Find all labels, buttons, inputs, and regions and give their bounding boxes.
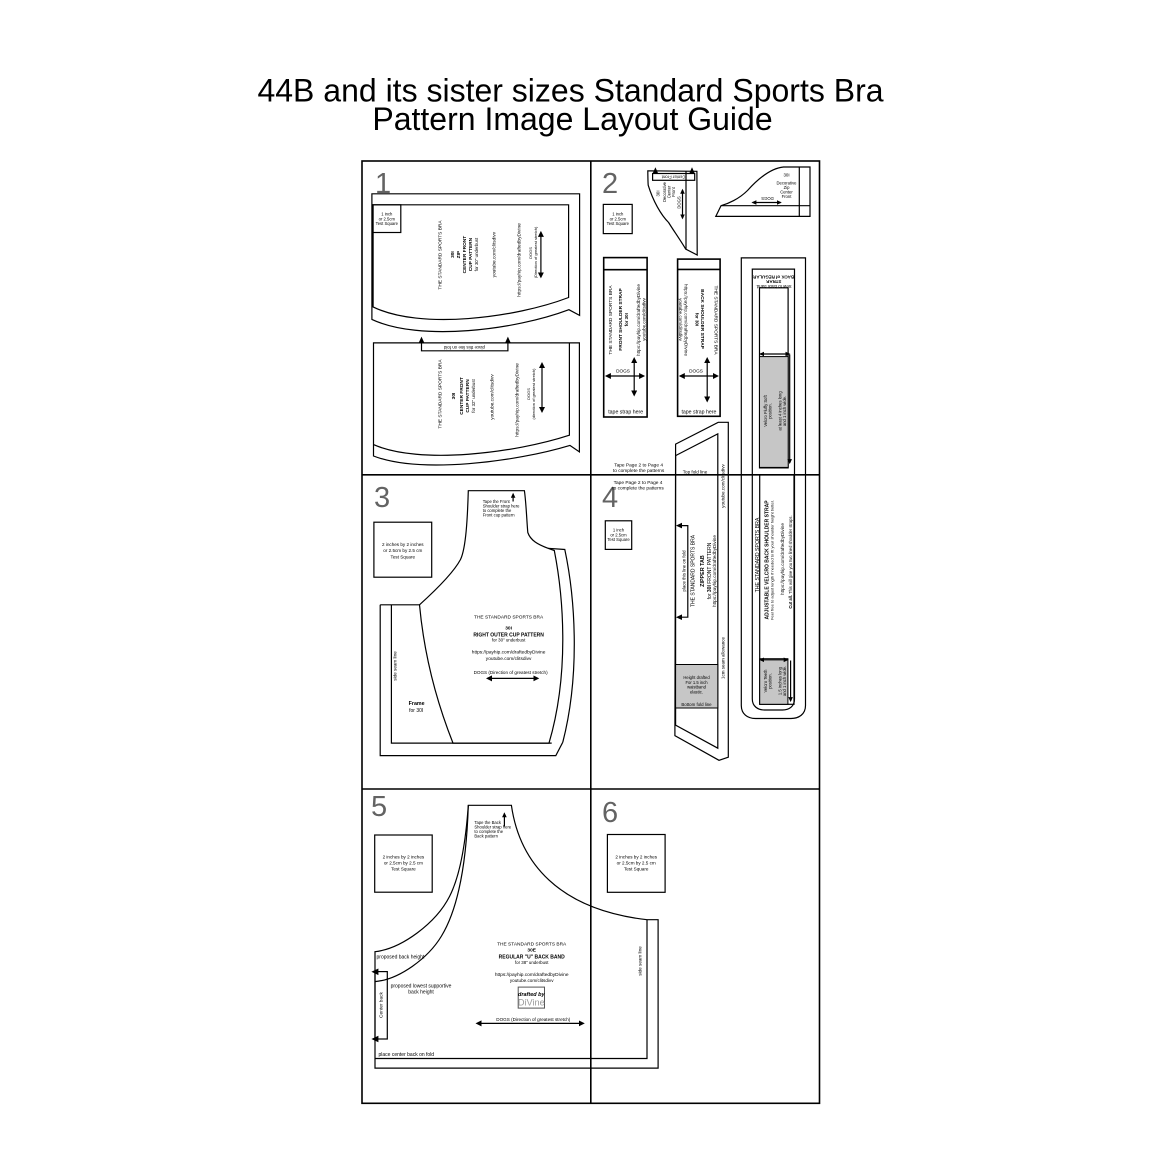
svg-text:for 30" underbust: for 30" underbust [474,237,479,271]
svg-text:3: 3 [374,482,390,514]
svg-text:30I: 30I [505,626,512,632]
svg-text:or 2.5cm by 2.5 cm: or 2.5cm by 2.5 cm [384,860,423,865]
svg-text:or 2.5cm by 2.5 cm: or 2.5cm by 2.5 cm [383,548,422,553]
svg-text:and 1 inch wide.: and 1 inch wide. [782,666,787,696]
svg-text:DOGS: DOGS [689,369,703,374]
svg-text:Frame: Frame [409,701,425,707]
svg-text:tape strap here: tape strap here [608,410,643,416]
svg-text:1cm seam allowance: 1cm seam allowance [721,637,726,680]
svg-text:to complete the patterns: to complete the patterns [613,468,665,474]
svg-text:place center back on fold: place center back on fold [379,1052,435,1058]
svg-text:THE STANDARD SPORTS BRA: THE STANDARD SPORTS BRA [713,285,719,355]
svg-text:for 30I: for 30I [624,313,629,326]
svg-text:Front cup pattern: Front cup pattern [483,513,516,518]
svg-text:Feel free to adjust length if: Feel free to adjust length if needed to … [770,500,775,620]
svg-text:2 inches by 2 inches: 2 inches by 2 inches [383,855,425,860]
svg-text:for 32" underbust: for 32" underbust [471,378,476,412]
svg-text:Center Front: Center Front [661,175,685,180]
svg-text:2 inches by 2 inches: 2 inches by 2 inches [615,855,657,860]
svg-text:https://payhip.com/draftedbyDi: https://payhip.com/draftedbyDivine [515,363,521,437]
svg-text:for 30I: for 30I [409,708,423,714]
svg-text:DOGS (Direction of greatest st: DOGS (Direction of greatest stretch) [496,1017,571,1022]
svg-text:https://payhip.com/draftedbyDi: https://payhip.com/draftedbyDivine [683,284,688,356]
svg-text:place this line on fold: place this line on fold [682,550,687,592]
svg-text:https://payhip.com/draftedbyDi: https://payhip.com/draftedbyDivine [472,650,546,656]
svg-text:THE STANDARD SPORTS BRA: THE STANDARD SPORTS BRA [438,359,444,429]
svg-text:DOGS: DOGS [761,196,774,201]
svg-text:youtube.com/clitsdivv: youtube.com/clitsdivv [492,231,498,277]
svg-text:6: 6 [602,797,618,829]
svg-text:Test Square: Test Square [391,554,416,559]
svg-text:ZIPPER TAB: ZIPPER TAB [700,555,706,587]
svg-text:Test Square: Test Square [391,867,416,872]
svg-text:youtube.com/clitsdivv: youtube.com/clitsdivv [490,374,496,420]
svg-text:side seam line: side seam line [393,651,398,681]
svg-text:CENTER FRONT: CENTER FRONT [459,377,465,415]
svg-text:Pattern Image Layout Guide: Pattern Image Layout Guide [372,101,772,137]
svg-text:Tape Page 2 to Page 4: Tape Page 2 to Page 4 [614,463,663,469]
svg-text:youtube.com/clitsdivv: youtube.com/clitsdivv [486,656,532,662]
svg-text:30I: 30I [451,392,457,399]
svg-text:Cut all. This will give you tw: Cut all. This will give you two lined sh… [788,515,793,608]
svg-text:CENTER FRONT: CENTER FRONT [462,236,468,274]
svg-text:5: 5 [371,791,387,823]
svg-text:1: 1 [375,168,391,200]
svg-text:Center back: Center back [378,991,384,1017]
svg-text:elastic.: elastic. [690,689,703,694]
svg-text:https://payhip.com/draftedbyDi: https://payhip.com/draftedbyDivine [712,535,717,607]
svg-text:https://payhip.com/draftedbyDi: https://payhip.com/draftedbyDivine [517,223,523,297]
svg-text:or 2.5cm by 2.5 cm: or 2.5cm by 2.5 cm [617,861,656,866]
svg-text:30I: 30I [656,190,661,196]
svg-text:youtube.com/clitsdivv: youtube.com/clitsdivv [721,463,726,507]
svg-text:and 1 inch wide.: and 1 inch wide. [782,396,787,426]
svg-text:https://payhip.com/draftedbyDi: https://payhip.com/draftedbyDivine [636,284,641,356]
svg-text:Sew to back band.: Sew to back band. [756,284,792,289]
svg-text:youtube.com/clitsdivv: youtube.com/clitsdivv [642,297,647,341]
svg-text:back height: back height [408,989,434,995]
svg-text:proposed back height: proposed back height [377,954,425,960]
svg-text:to complete the patterns: to complete the patterns [612,486,664,492]
svg-text:DOGS: DOGS [677,196,682,209]
svg-text:Front: Front [671,186,676,197]
svg-text:ZIP: ZIP [456,250,462,258]
svg-text:THE STANDARD SPORTS BRA: THE STANDARD SPORTS BRA [474,615,544,621]
svg-text:Test Square: Test Square [624,867,649,872]
svg-text:Tape Page 2 to Page 4: Tape Page 2 to Page 4 [614,480,663,486]
svg-text:THE STANDARD SPORTS BRA: THE STANDARD SPORTS BRA [497,942,567,948]
svg-text:STRAP.: STRAP. [766,279,782,284]
svg-text:place this line on fold: place this line on fold [443,345,485,350]
svg-text:side seam line: side seam line [638,946,643,976]
svg-text:30I: 30I [450,251,456,258]
svg-text:Front: Front [782,194,793,199]
svg-text:2: 2 [602,168,618,200]
svg-text:DiVine: DiVine [518,997,545,1007]
svg-text:BACK of REGULAR: BACK of REGULAR [752,274,794,279]
svg-text:for 30" underbust: for 30" underbust [492,638,526,643]
svg-text:THE STANDARD SPORTS BRA: THE STANDARD SPORTS BRA [755,517,761,592]
svg-text:position.: position. [768,403,773,419]
svg-text:tape strap here: tape strap here [681,410,716,416]
svg-text:Test Square: Test Square [607,537,630,542]
svg-text:30E: 30E [527,948,536,954]
svg-text:DOGS (Direction of greatest st: DOGS (Direction of greatest stretch) [474,670,549,675]
svg-text:2 inches by 2 inches: 2 inches by 2 inches [382,542,424,547]
svg-text:THE STANDARD SPORTS BRA: THE STANDARD SPORTS BRA [608,285,614,355]
svg-text:(Direction of greatest stretch: (Direction of greatest stretch) [533,226,538,278]
svg-text:position.: position. [768,673,773,689]
svg-text:DOGS: DOGS [616,369,630,374]
svg-text:Back pattern: Back pattern [474,833,498,838]
svg-text:Top fold line: Top fold line [683,470,708,475]
svg-text:(direction of greatest stretch: (direction of greatest stretch) [531,368,536,420]
svg-text:https://payhip.com/draftedbyDi: https://payhip.com/draftedbyDivine [780,523,785,595]
svg-text:Test Square: Test Square [376,221,399,226]
svg-text:youtube.com/clitsdivv: youtube.com/clitsdivv [510,978,554,983]
svg-text:THE STANDARD SPORTS BRA: THE STANDARD SPORTS BRA [691,534,697,607]
svg-text:for 38" underbust: for 38" underbust [515,960,549,965]
svg-text:THE STANDARD SPORTS BRA: THE STANDARD SPORTS BRA [438,220,444,290]
svg-text:youtube.com/clitsdivv: youtube.com/clitsdivv [678,298,683,342]
svg-text:for 30I: for 30I [694,313,699,326]
svg-text:Test Square: Test Square [607,221,630,226]
svg-text:Bottom fold line: Bottom fold line [681,702,712,707]
svg-text:30I: 30I [783,173,789,178]
